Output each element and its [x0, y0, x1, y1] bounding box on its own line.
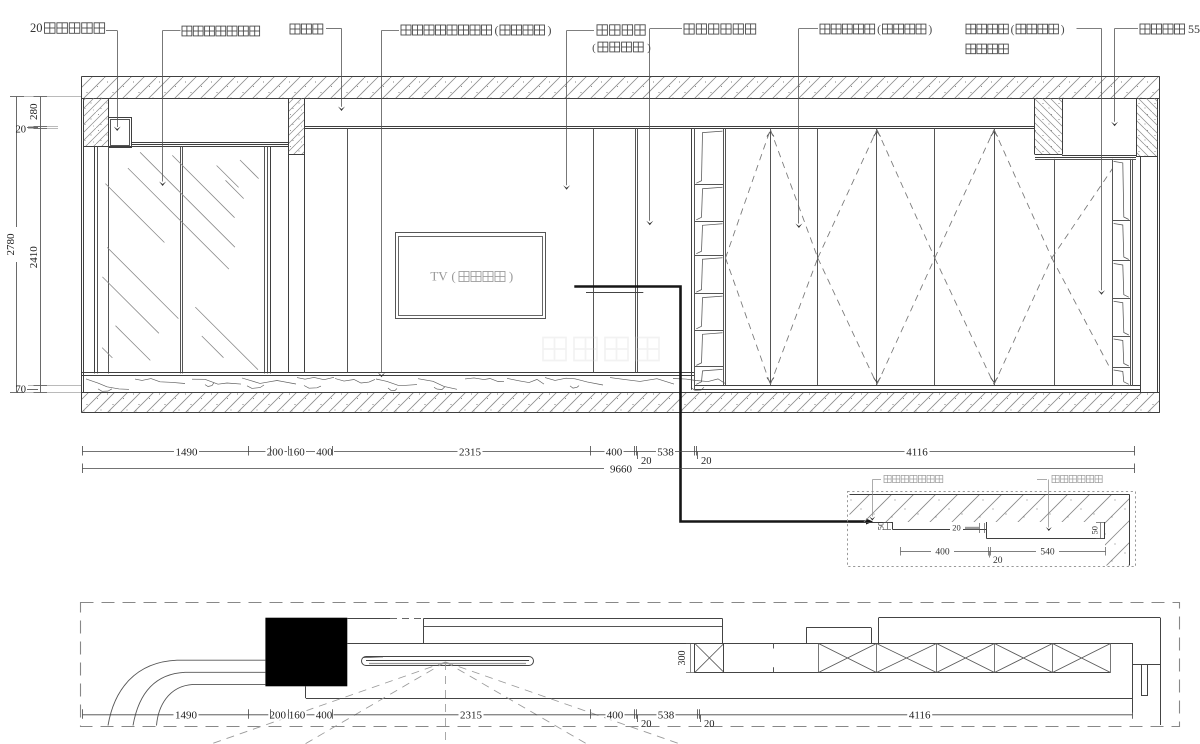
svg-text:20: 20: [993, 556, 1003, 566]
svg-text:70: 70: [16, 385, 27, 396]
svg-text:): ): [928, 24, 932, 36]
svg-text:160: 160: [288, 446, 305, 458]
svg-text:2315: 2315: [460, 710, 483, 722]
svg-text:1490: 1490: [175, 710, 198, 722]
svg-text:280: 280: [28, 103, 40, 120]
svg-text:20: 20: [952, 523, 961, 533]
svg-text:(: (: [451, 269, 455, 284]
svg-text:400: 400: [935, 548, 950, 558]
svg-text:400: 400: [607, 710, 624, 722]
svg-text:(: (: [877, 24, 881, 36]
svg-text:2315: 2315: [459, 446, 482, 458]
svg-text:160: 160: [289, 710, 306, 722]
svg-text:2410: 2410: [28, 246, 40, 269]
svg-text:400: 400: [316, 710, 333, 722]
svg-text:4116: 4116: [906, 446, 928, 458]
svg-text:1490: 1490: [176, 446, 199, 458]
svg-text:200: 200: [270, 710, 287, 722]
svg-text:300: 300: [677, 651, 688, 666]
svg-text:20: 20: [701, 456, 712, 467]
svg-text:400: 400: [316, 446, 333, 458]
svg-text:20: 20: [641, 719, 652, 730]
svg-text:(: (: [495, 23, 499, 37]
svg-text:): ): [647, 42, 651, 54]
svg-text:9660: 9660: [610, 464, 633, 476]
svg-text:TV: TV: [430, 269, 448, 284]
svg-text:): ): [509, 269, 513, 284]
svg-text:20: 20: [30, 21, 43, 35]
svg-text:20: 20: [16, 124, 27, 135]
svg-text:200: 200: [267, 446, 284, 458]
svg-text:538: 538: [657, 446, 674, 458]
svg-text:50: 50: [1090, 526, 1100, 535]
svg-text:55: 55: [1188, 22, 1200, 36]
svg-text:): ): [1061, 24, 1065, 36]
svg-text:50: 50: [876, 522, 886, 531]
svg-text:20: 20: [704, 719, 715, 730]
svg-text:400: 400: [606, 446, 623, 458]
svg-text:2780: 2780: [5, 233, 17, 256]
svg-text:(: (: [592, 42, 596, 54]
svg-text:538: 538: [658, 710, 675, 722]
svg-text:(: (: [1011, 24, 1015, 36]
svg-text:): ): [548, 23, 552, 37]
svg-text:20: 20: [641, 456, 652, 467]
svg-text:4116: 4116: [909, 710, 931, 722]
svg-text:540: 540: [1040, 548, 1055, 558]
